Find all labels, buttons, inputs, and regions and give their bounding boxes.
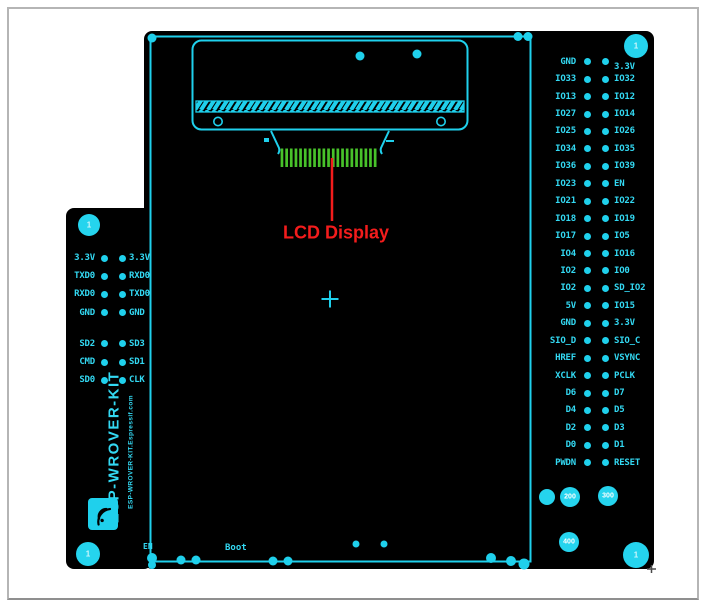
pin-pad-icon xyxy=(584,58,591,65)
pin-pad-icon xyxy=(602,58,609,65)
pin-row: D6 D7 xyxy=(530,384,645,401)
pin-row: IO33 IO32 xyxy=(530,70,645,87)
pin-row: GND GND xyxy=(57,304,150,322)
pin-pad-icon xyxy=(602,459,609,466)
pin-label-right: IO15 xyxy=(614,301,635,311)
boot-button-label: Boot xyxy=(225,543,247,553)
hole-marker: 1 xyxy=(87,221,91,230)
pin-label-left: D4 xyxy=(530,405,576,415)
pin-pad-icon xyxy=(602,163,609,170)
pin-pad-icon xyxy=(584,302,591,309)
pin-pad-icon xyxy=(584,111,591,118)
pin-label-right: RESET xyxy=(614,458,640,468)
pin-label-right: D3 xyxy=(614,423,624,433)
pin-label-left: IO18 xyxy=(530,214,576,224)
drill-size-label: 300 xyxy=(602,493,614,500)
registration-mark xyxy=(647,565,656,573)
pin-label-right: EN xyxy=(614,179,624,189)
pin-pad-icon xyxy=(584,320,591,327)
pin-pad-icon xyxy=(584,372,591,379)
pin-pad-icon xyxy=(602,442,609,449)
drill-size-label: 400 xyxy=(563,539,575,546)
pin-label-right: RXD0 xyxy=(129,271,150,281)
pin-pad-icon xyxy=(602,250,609,257)
board-outline xyxy=(151,37,531,562)
pin-label-left: GND xyxy=(57,308,95,318)
pin-pad-icon xyxy=(119,340,126,347)
lcd-connector xyxy=(264,131,394,167)
pin-pad-icon xyxy=(584,442,591,449)
pin-label-right: D5 xyxy=(614,405,624,415)
right-pin-header: GND 3.3V IO33 IO32 IO13 IO12 IO27 IO14 I… xyxy=(530,53,645,472)
pin-pad-icon xyxy=(101,291,108,298)
pin-label-right: D1 xyxy=(614,440,624,450)
pin-pad-icon xyxy=(101,359,108,366)
pin-label-left: CMD xyxy=(57,357,95,367)
pin-label-left: 5V xyxy=(530,301,576,311)
pin-pad-icon xyxy=(602,145,609,152)
pin-pad-icon xyxy=(602,128,609,135)
pin-row: IO18 IO19 xyxy=(530,210,645,227)
pin-label-right: IO35 xyxy=(614,144,635,154)
pin-row: GND 3.3V xyxy=(530,53,645,70)
pin-label-right: IO22 xyxy=(614,196,635,206)
pin-pad-icon xyxy=(602,198,609,205)
pin-label-left: D6 xyxy=(530,388,576,398)
pin-label-right: D7 xyxy=(614,388,624,398)
pin-label-right: 3.3V xyxy=(614,62,635,72)
pin-label-right: SD1 xyxy=(129,357,145,367)
pin-pad-icon xyxy=(602,215,609,222)
lcd-screw-hole-left xyxy=(214,117,222,125)
pin-label-left: TXD0 xyxy=(57,271,95,281)
pin-row: IO17 IO5 xyxy=(530,227,645,244)
pin-pad-icon xyxy=(584,163,591,170)
pin-row: IO21 IO22 xyxy=(530,193,645,210)
pin-label-right: IO16 xyxy=(614,249,635,259)
lcd-pad-dot xyxy=(356,52,365,61)
pin-row: SD2 SD3 xyxy=(57,335,150,353)
pin-label-right: IO12 xyxy=(614,92,635,102)
pin-pad-icon xyxy=(602,424,609,431)
pin-pad-icon xyxy=(584,76,591,83)
pin-label-left: SIO_D xyxy=(530,336,576,346)
hole-marker: 1 xyxy=(634,551,638,560)
pin-row: CMD SD1 xyxy=(57,353,150,371)
pin-label-right: SIO_C xyxy=(614,336,640,346)
pin-pad-icon xyxy=(602,233,609,240)
crosshair-icon xyxy=(322,291,339,308)
connector-pins xyxy=(281,149,377,168)
pin-pad-icon xyxy=(584,93,591,100)
pin-label-right: 3.3V xyxy=(129,253,150,263)
pin-label-left: RXD0 xyxy=(57,289,95,299)
pin-row: 5V IO15 xyxy=(530,297,645,314)
pin-label-left: XCLK xyxy=(530,371,576,381)
pin-row: RXD0 TXD0 xyxy=(57,285,150,303)
pin-label-right: IO14 xyxy=(614,109,635,119)
pin-pad-icon xyxy=(584,390,591,397)
pin-pad-icon xyxy=(602,320,609,327)
pin-pad-icon xyxy=(584,267,591,274)
pin-label-left: IO13 xyxy=(530,92,576,102)
pin-pad-icon xyxy=(584,215,591,222)
pin-label-right: IO32 xyxy=(614,74,635,84)
pin-pad-icon xyxy=(584,145,591,152)
pin-row: 3.3V 3.3V xyxy=(57,249,150,267)
pin-row: SIO_D SIO_C xyxy=(530,332,645,349)
pin-row: PWDN RESET xyxy=(530,454,645,471)
pin-row: HREF VSYNC xyxy=(530,349,645,366)
pin-row: IO4 IO16 xyxy=(530,245,645,262)
pin-pad-icon xyxy=(602,267,609,274)
pin-label-right: 3.3V xyxy=(614,318,635,328)
pin-pad-icon xyxy=(584,198,591,205)
pin-label-left: D2 xyxy=(530,423,576,433)
pin-label-right: IO5 xyxy=(614,231,630,241)
pin-label-right: IO39 xyxy=(614,161,635,171)
pin-row: GND 3.3V xyxy=(530,315,645,332)
pin-pad-icon xyxy=(101,340,108,347)
pin-row: IO13 IO12 xyxy=(530,88,645,105)
pin-pad-icon xyxy=(119,309,126,316)
hole-marker: 1 xyxy=(86,550,90,559)
pin-label-left: SD0 xyxy=(57,375,95,385)
pin-pad-icon xyxy=(602,372,609,379)
pin-label-right: VSYNC xyxy=(614,353,640,363)
pin-row: D2 D3 xyxy=(530,419,645,436)
pin-label-left: D0 xyxy=(530,440,576,450)
bottom-edge-pads xyxy=(147,541,530,570)
pin-label-right: IO0 xyxy=(614,266,630,276)
pin-label-left: IO33 xyxy=(530,74,576,84)
pin-label-right: PCLK xyxy=(614,371,635,381)
pin-label-left: IO34 xyxy=(530,144,576,154)
pin-pad-icon xyxy=(119,255,126,262)
espressif-logo-icon xyxy=(88,498,118,535)
pin-row: D0 D1 xyxy=(530,437,645,454)
pin-pad-icon xyxy=(602,180,609,187)
pin-pad-icon xyxy=(602,337,609,344)
lcd-hatch-strip xyxy=(196,101,464,112)
pin-row: IO27 IO14 xyxy=(530,105,645,122)
pin-label-left: IO4 xyxy=(530,249,576,259)
pin-pad-icon xyxy=(584,233,591,240)
pin-row: TXD0 RXD0 xyxy=(57,267,150,285)
pin-pad-icon xyxy=(602,76,609,83)
pin-label-right: SD_IO2 xyxy=(614,283,645,293)
pin-pad-icon xyxy=(584,337,591,344)
pin-pad-icon xyxy=(584,180,591,187)
pin-label-right: SD3 xyxy=(129,339,145,349)
pin-label-left: GND xyxy=(530,57,576,67)
pin-label-right: IO19 xyxy=(614,214,635,224)
pin-label-left: IO17 xyxy=(530,231,576,241)
pin-pad-icon xyxy=(101,273,108,280)
silkscreen-subtitle: ESP-WROVER-KIT.Espressif.com xyxy=(128,395,135,509)
pin-label-left: SD2 xyxy=(57,339,95,349)
pin-label-left: IO2 xyxy=(530,266,576,276)
pin-pad-icon xyxy=(119,291,126,298)
pin-label-left: HREF xyxy=(530,353,576,363)
en-button-label: EN xyxy=(143,542,153,551)
left-pin-header: 3.3V 3.3V TXD0 RXD0 RXD0 TXD0 GND GND SD… xyxy=(57,249,150,389)
pin-pad-icon xyxy=(584,250,591,257)
pin-row: IO2 SD_IO2 xyxy=(530,280,645,297)
pin-label-right: IO26 xyxy=(614,126,635,136)
pin-pad-icon xyxy=(584,407,591,414)
lcd-pad-dot xyxy=(413,50,422,59)
pin-label-left: IO23 xyxy=(530,179,576,189)
pin-label-left: IO2 xyxy=(530,283,576,293)
pin-pad-icon xyxy=(584,355,591,362)
pin-pad-icon xyxy=(602,355,609,362)
pin-pad-icon xyxy=(101,309,108,316)
pin-label-left: IO36 xyxy=(530,161,576,171)
pin-pad-icon xyxy=(119,359,126,366)
pin-label-left: GND xyxy=(530,318,576,328)
drill-size-label: 200 xyxy=(564,494,576,501)
pin-label-left: IO27 xyxy=(530,109,576,119)
pin-label-left: 3.3V xyxy=(57,253,95,263)
pin-row: IO23 EN xyxy=(530,175,645,192)
pin-pad-icon xyxy=(602,93,609,100)
pin-pad-icon xyxy=(584,459,591,466)
pin-row: D4 D5 xyxy=(530,402,645,419)
pin-pad-icon xyxy=(584,285,591,292)
pin-pad-icon xyxy=(602,407,609,414)
pin-pad-icon xyxy=(119,273,126,280)
hole-marker: 1 xyxy=(634,42,638,51)
lcd-display-annotation: LCD Display xyxy=(283,223,389,244)
pin-pad-icon xyxy=(584,128,591,135)
pin-row: IO36 IO39 xyxy=(530,158,645,175)
pin-label-left: IO21 xyxy=(530,196,576,206)
pin-row: SD0 CLK xyxy=(57,371,150,389)
pin-label-right: TXD0 xyxy=(129,289,150,299)
pin-label-left: IO25 xyxy=(530,126,576,136)
pin-label-right: CLK xyxy=(129,375,145,385)
lcd-screw-hole-right xyxy=(437,117,445,125)
pin-row: IO25 IO26 xyxy=(530,123,645,140)
pin-pad-icon xyxy=(101,255,108,262)
pin-pad-icon xyxy=(602,285,609,292)
pin-label-right: GND xyxy=(129,308,145,318)
pin-pad-icon xyxy=(602,390,609,397)
pin-pad-icon xyxy=(584,424,591,431)
pin-row: IO2 IO0 xyxy=(530,262,645,279)
pin-label-left: PWDN xyxy=(530,458,576,468)
pin-row: IO34 IO35 xyxy=(530,140,645,157)
lcd-module-outline xyxy=(193,41,468,130)
pin-pad-icon xyxy=(602,302,609,309)
pin-row: XCLK PCLK xyxy=(530,367,645,384)
pin-pad-icon xyxy=(602,111,609,118)
